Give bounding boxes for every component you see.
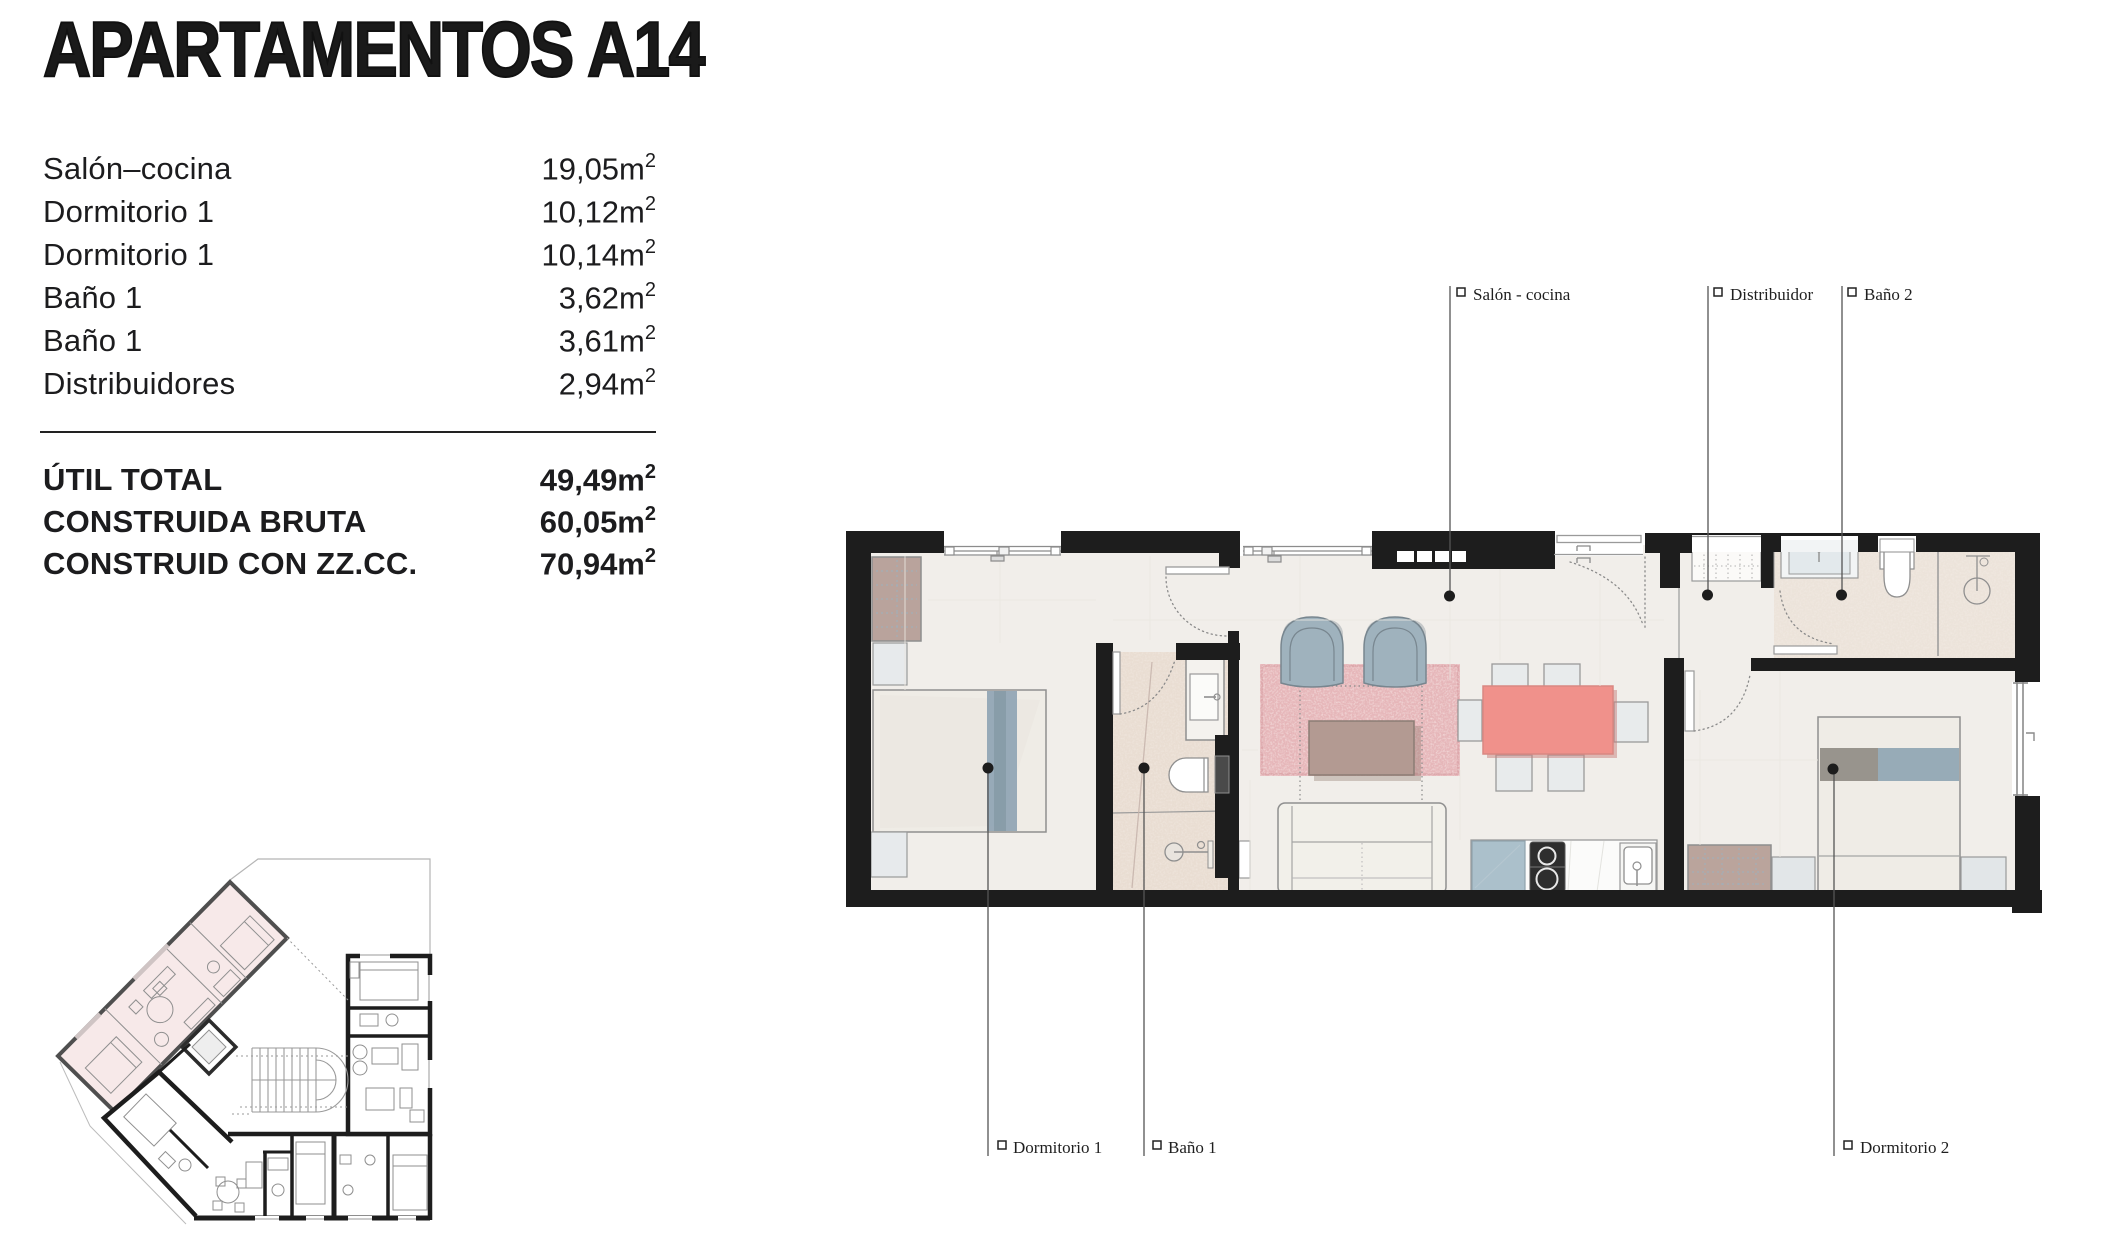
svg-text:Baño 2: Baño 2 (1864, 285, 1913, 304)
svg-text:Dormitorio 2: Dormitorio 2 (1860, 1138, 1949, 1157)
svg-text:Baño 1: Baño 1 (1168, 1138, 1217, 1157)
svg-text:Distribuidor: Distribuidor (1730, 285, 1813, 304)
svg-text:Dormitorio 1: Dormitorio 1 (1013, 1138, 1102, 1157)
svg-text:Salón - cocina: Salón - cocina (1473, 285, 1571, 304)
